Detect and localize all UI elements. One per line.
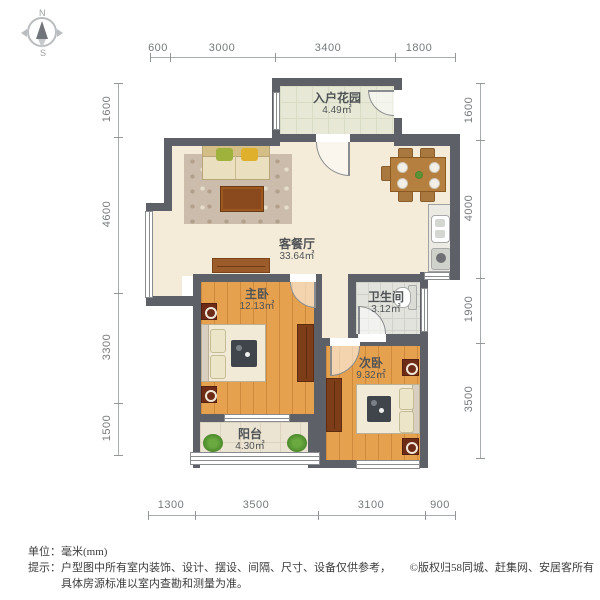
bed-pillow: [210, 355, 226, 379]
room-name: 次卧: [326, 357, 416, 369]
room-area: 9.32㎡: [326, 370, 416, 382]
table-plant: [415, 171, 423, 179]
floor-plan: 入户花园 4.49㎡ 客餐厅 33.64㎡ 主卧 12.13㎡ 卫生间 3.12…: [0, 0, 600, 600]
balcony-railing-window: [190, 452, 320, 465]
plate: [397, 178, 408, 189]
wall: [164, 138, 172, 210]
room-area: 12.13㎡: [212, 301, 302, 313]
master-wardrobe: [297, 324, 314, 382]
tv-cabinet-line: [217, 266, 265, 267]
bay-floor: [152, 210, 182, 298]
room-label-living-dining: 客餐厅 33.64㎡: [252, 238, 342, 263]
window: [273, 92, 280, 130]
dining-table: [390, 157, 446, 192]
door-opening: [316, 134, 350, 142]
window: [424, 272, 450, 280]
room-label-bathroom: 卫生间 3.12㎡: [341, 291, 431, 316]
disclaimer-line2: 具体房源标准以室内查勘和测量为准。: [0, 576, 600, 592]
master-bed: [201, 324, 266, 382]
copyright-text: ©版权归58同城、赶集网、安居客所有: [410, 560, 594, 576]
sofa-pillow-green: [216, 148, 233, 161]
dining-chair: [398, 191, 413, 202]
wall: [272, 78, 402, 86]
wall: [146, 203, 172, 211]
room-label-master-bedroom: 主卧 12.13㎡: [212, 288, 302, 313]
kitchen-counter: [428, 204, 451, 272]
unit-note: 单位：毫米(mm): [0, 544, 600, 560]
sofa: [202, 142, 270, 180]
room-name: 主卧: [212, 288, 302, 300]
kitchen-stove: [431, 248, 451, 270]
plate: [397, 162, 408, 173]
room-name: 阳台: [205, 428, 295, 440]
balcony-slider-window: [224, 414, 290, 422]
plate: [429, 162, 440, 173]
room-area: 4.30㎡: [205, 441, 295, 453]
door-opening: [290, 274, 316, 282]
door-opening: [330, 338, 360, 346]
bed-throw: [367, 396, 391, 422]
room-label-entry-garden: 入户花园 4.49㎡: [292, 92, 382, 117]
room-name: 客餐厅: [252, 238, 342, 250]
door-opening: [394, 90, 402, 118]
second-bed: [356, 384, 420, 434]
window: [356, 460, 420, 469]
bed-pillow: [210, 329, 226, 353]
wall: [164, 138, 280, 146]
coffee-table: [220, 186, 264, 212]
sofa-cushion-divider: [235, 156, 236, 179]
master-nightstand: [201, 386, 217, 403]
dining-chair: [420, 191, 435, 202]
wall: [420, 338, 428, 468]
room-area: 3.12㎡: [341, 304, 431, 316]
bed-pillow: [399, 388, 414, 410]
kitchen-sink: [431, 215, 450, 243]
second-nightstand: [402, 438, 419, 455]
room-name: 入户花园: [292, 92, 382, 104]
wall: [193, 274, 201, 422]
room-name: 卫生间: [341, 291, 431, 303]
plate: [429, 178, 440, 189]
room-label-balcony: 阳台 4.30㎡: [205, 428, 295, 453]
room-label-second-bedroom: 次卧 9.32㎡: [326, 357, 416, 382]
bed-headboard: [202, 325, 209, 381]
window: [145, 211, 153, 298]
bed-pillow: [399, 411, 414, 433]
footer: 单位：毫米(mm) 提示：户型图中所有室内装饰、设计、摆设、间隔、尺寸、设备仅供…: [0, 544, 600, 592]
room-area: 33.64㎡: [252, 251, 342, 263]
second-wardrobe: [326, 378, 342, 432]
bed-throw: [231, 340, 257, 367]
sofa-pillow-yellow: [241, 148, 258, 161]
room-area: 4.49㎡: [292, 105, 382, 117]
door-opening: [358, 334, 386, 342]
wall: [450, 134, 460, 280]
wall: [348, 274, 428, 282]
